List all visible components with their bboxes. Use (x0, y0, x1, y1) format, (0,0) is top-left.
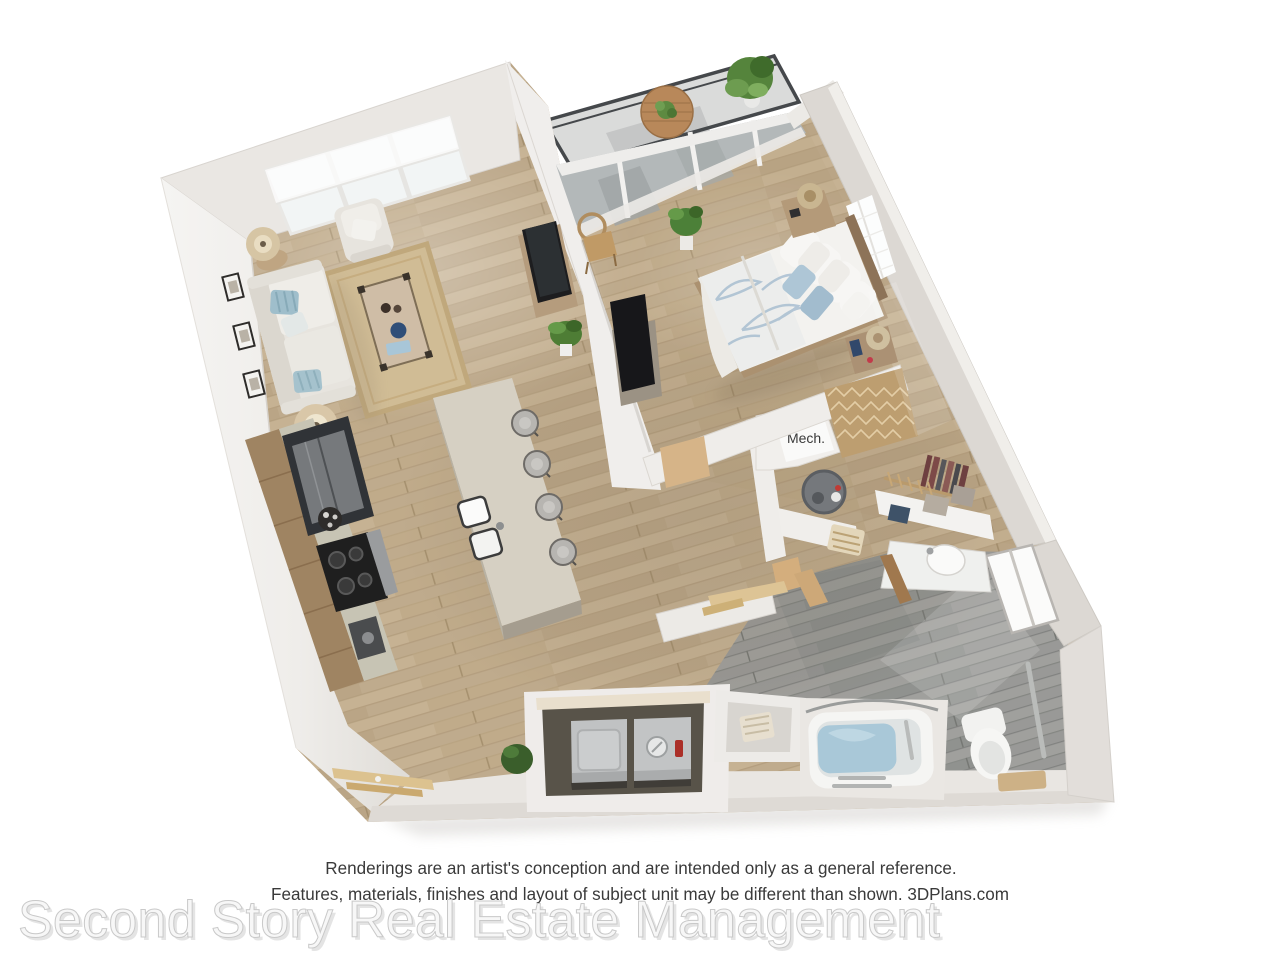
svg-text:Second Story Real Estate Manag: Second Story Real Estate Management (18, 891, 941, 949)
svg-text:Renderings are an artist's con: Renderings are an artist's conception an… (325, 859, 956, 878)
